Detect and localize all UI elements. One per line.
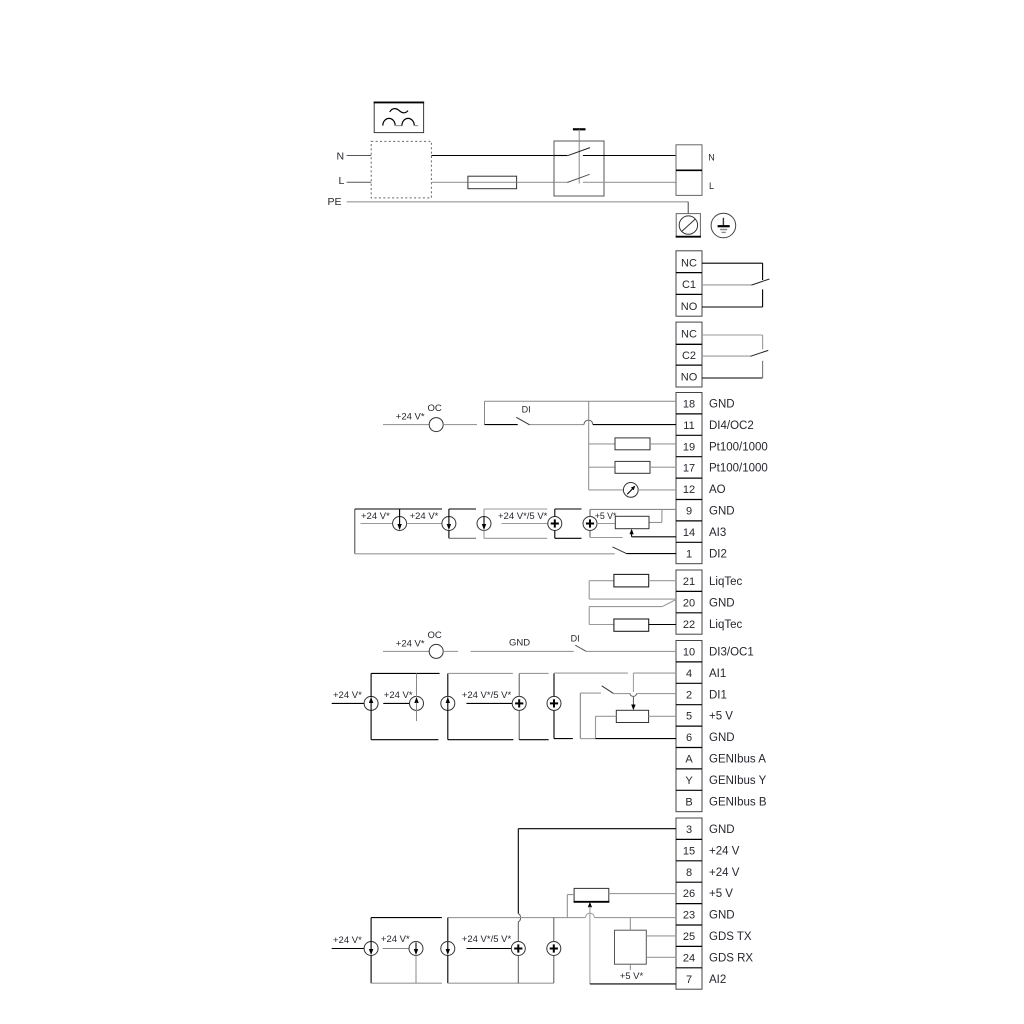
svg-text:19: 19 bbox=[683, 441, 695, 453]
svg-text:LiqTec: LiqTec bbox=[709, 619, 742, 631]
svg-text:+24 V*: +24 V* bbox=[410, 511, 439, 522]
svg-text:OC: OC bbox=[428, 403, 442, 414]
svg-text:+24 V*: +24 V* bbox=[396, 638, 425, 649]
svg-text:5: 5 bbox=[686, 711, 692, 723]
svg-text:PE: PE bbox=[328, 196, 342, 208]
svg-text:GND: GND bbox=[509, 637, 530, 648]
svg-text:+24 V*: +24 V* bbox=[384, 690, 413, 701]
svg-text:25: 25 bbox=[683, 931, 695, 943]
svg-text:Pt100/1000: Pt100/1000 bbox=[709, 463, 768, 475]
svg-text:10: 10 bbox=[683, 647, 695, 659]
svg-text:7: 7 bbox=[686, 974, 692, 986]
svg-text:+24 V*/5 V*: +24 V*/5 V* bbox=[462, 690, 512, 701]
svg-text:GND: GND bbox=[709, 597, 735, 609]
svg-text:2: 2 bbox=[686, 689, 692, 701]
svg-text:C2: C2 bbox=[682, 350, 696, 362]
svg-text:24: 24 bbox=[683, 952, 695, 964]
svg-text:AI2: AI2 bbox=[709, 974, 726, 986]
svg-text:NO: NO bbox=[681, 371, 698, 383]
svg-text:A: A bbox=[685, 754, 693, 766]
svg-text:OC: OC bbox=[428, 630, 442, 641]
svg-text:GND: GND bbox=[709, 506, 735, 518]
svg-text:GENIbus B: GENIbus B bbox=[709, 796, 767, 808]
svg-text:N: N bbox=[337, 151, 345, 163]
svg-text:12: 12 bbox=[683, 484, 695, 496]
svg-text:Pt100/1000: Pt100/1000 bbox=[709, 441, 768, 453]
svg-text:N: N bbox=[708, 153, 715, 163]
svg-text:AI1: AI1 bbox=[709, 668, 726, 680]
svg-text:1: 1 bbox=[686, 548, 692, 560]
svg-text:NO: NO bbox=[681, 301, 698, 313]
svg-text:DI: DI bbox=[571, 634, 580, 644]
svg-text:+24 V*/5 V*: +24 V*/5 V* bbox=[462, 934, 512, 945]
svg-text:Y: Y bbox=[685, 775, 693, 787]
svg-text:L: L bbox=[709, 181, 714, 191]
svg-text:20: 20 bbox=[683, 597, 695, 609]
svg-text:AO: AO bbox=[709, 484, 726, 496]
svg-text:GDS RX: GDS RX bbox=[709, 952, 753, 964]
svg-text:3: 3 bbox=[686, 824, 692, 836]
svg-text:8: 8 bbox=[686, 867, 692, 879]
svg-text:DI4/OC2: DI4/OC2 bbox=[709, 420, 754, 432]
svg-text:+24 V: +24 V bbox=[709, 867, 740, 879]
svg-text:GENIbus Y: GENIbus Y bbox=[709, 775, 767, 787]
svg-text:+5 V*: +5 V* bbox=[620, 971, 644, 982]
svg-text:GENIbus A: GENIbus A bbox=[709, 754, 766, 766]
svg-text:18: 18 bbox=[683, 399, 695, 411]
svg-text:+24 V*: +24 V* bbox=[381, 934, 410, 945]
svg-text:DI1: DI1 bbox=[709, 689, 727, 701]
svg-text:6: 6 bbox=[686, 732, 692, 744]
svg-text:GDS TX: GDS TX bbox=[709, 931, 752, 943]
svg-text:+5 V: +5 V bbox=[709, 711, 733, 723]
svg-text:14: 14 bbox=[683, 527, 695, 539]
svg-text:+24 V*/5 V*: +24 V*/5 V* bbox=[498, 511, 548, 522]
svg-text:11: 11 bbox=[683, 420, 694, 432]
svg-text:+24 V*: +24 V* bbox=[333, 935, 362, 946]
svg-text:NC: NC bbox=[681, 257, 697, 269]
svg-text:LiqTec: LiqTec bbox=[709, 576, 742, 588]
svg-text:+24 V: +24 V bbox=[709, 845, 740, 857]
svg-text:DI: DI bbox=[522, 404, 531, 414]
svg-text:17: 17 bbox=[683, 463, 695, 475]
svg-text:AI3: AI3 bbox=[709, 527, 726, 539]
svg-text:+24 V*: +24 V* bbox=[333, 690, 362, 701]
svg-text:15: 15 bbox=[683, 845, 695, 857]
svg-text:+24 V*: +24 V* bbox=[396, 412, 425, 423]
svg-text:21: 21 bbox=[683, 576, 695, 588]
svg-text:GND: GND bbox=[709, 399, 735, 411]
svg-text:4: 4 bbox=[686, 668, 692, 680]
svg-text:DI2: DI2 bbox=[709, 548, 727, 560]
svg-text:23: 23 bbox=[683, 910, 695, 922]
svg-text:C1: C1 bbox=[682, 279, 696, 291]
svg-text:26: 26 bbox=[683, 888, 695, 900]
svg-text:22: 22 bbox=[683, 619, 695, 631]
svg-text:L: L bbox=[339, 175, 345, 187]
svg-text:+5 V: +5 V bbox=[709, 888, 733, 900]
svg-text:+24 V*: +24 V* bbox=[361, 511, 390, 522]
svg-text:NC: NC bbox=[681, 329, 697, 341]
svg-text:GND: GND bbox=[709, 732, 735, 744]
svg-text:B: B bbox=[685, 796, 692, 808]
svg-text:+5 V*: +5 V* bbox=[595, 511, 617, 521]
svg-text:9: 9 bbox=[686, 506, 692, 518]
svg-text:GND: GND bbox=[709, 910, 735, 922]
svg-text:GND: GND bbox=[709, 824, 735, 836]
svg-text:DI3/OC1: DI3/OC1 bbox=[709, 647, 754, 659]
